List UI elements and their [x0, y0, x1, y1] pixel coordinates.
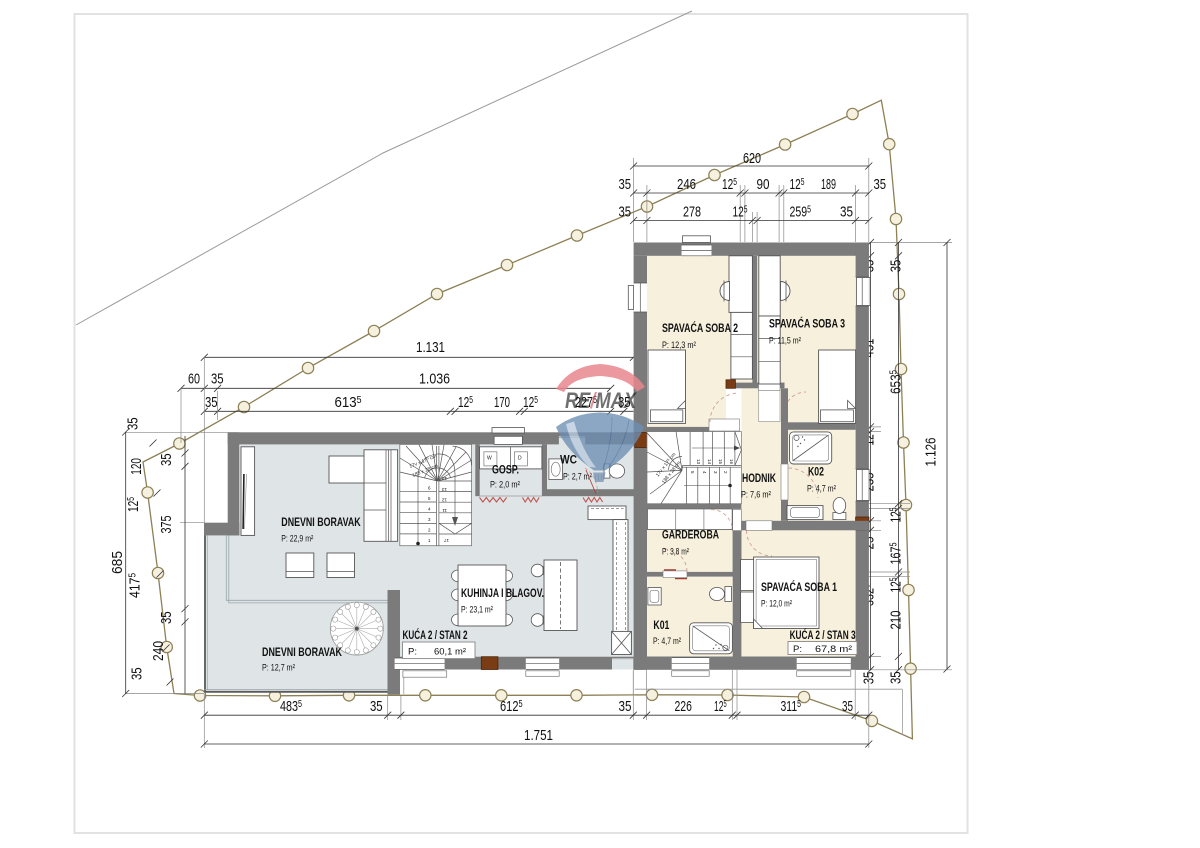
svg-text:685: 685: [109, 551, 126, 574]
svg-text:P: 12,0 m²: P: 12,0 m²: [761, 599, 792, 610]
svg-text:13: 13: [696, 459, 701, 465]
svg-text:278: 278: [683, 204, 701, 221]
svg-text:SPAVAĆA SOBA 3: SPAVAĆA SOBA 3: [769, 318, 845, 331]
svg-text:P: 3,8 m²: P: 3,8 m²: [662, 547, 689, 558]
svg-text:P: 12,3 m²: P: 12,3 m²: [662, 340, 696, 351]
svg-text:35: 35: [129, 667, 146, 680]
svg-text:60,1 m²: 60,1 m²: [434, 647, 466, 658]
svg-text:K01: K01: [653, 620, 669, 632]
svg-text:GARDEROBA: GARDEROBA: [662, 530, 719, 542]
svg-text:RE/MAX: RE/MAX: [565, 388, 637, 413]
svg-text:620: 620: [743, 150, 761, 167]
svg-text:1.126: 1.126: [923, 438, 940, 467]
svg-text:35: 35: [125, 417, 142, 430]
svg-text:15: 15: [718, 459, 723, 465]
svg-text:KUĆA 2 / STAN 2: KUĆA 2 / STAN 2: [403, 629, 468, 642]
svg-text:246: 246: [677, 176, 696, 193]
svg-text:90: 90: [757, 176, 770, 193]
svg-text:189: 189: [821, 176, 836, 193]
svg-text:375: 375: [158, 516, 175, 534]
svg-text:P: 2,0 m²: P: 2,0 m²: [490, 480, 520, 491]
svg-text:35: 35: [370, 698, 383, 715]
svg-text:1.751: 1.751: [524, 727, 553, 744]
svg-text:P: 4,7 m²: P: 4,7 m²: [653, 636, 681, 647]
svg-text:P: 23,1 m²: P: 23,1 m²: [461, 605, 493, 616]
svg-text:11: 11: [442, 508, 447, 513]
svg-text:P: 12,7 m²: P: 12,7 m²: [262, 663, 295, 674]
svg-text:35: 35: [888, 260, 905, 273]
svg-text:DNEVNI BORAVAK: DNEVNI BORAVAK: [281, 517, 361, 529]
svg-text:P: 4,7 m²: P: 4,7 m²: [807, 484, 836, 495]
svg-text:WC: WC: [560, 455, 577, 467]
svg-text:67,8 m²: 67,8 m²: [815, 644, 852, 655]
svg-text:35: 35: [158, 453, 175, 466]
svg-text:P: 11,5 m²: P: 11,5 m²: [769, 336, 801, 347]
svg-text:SPAVAĆA SOBA 2: SPAVAĆA SOBA 2: [662, 322, 738, 335]
svg-text:35: 35: [842, 698, 853, 715]
svg-text:1.131: 1.131: [416, 339, 445, 356]
svg-text:17: 17: [443, 538, 449, 543]
svg-text:P: 7,6 m²: P: 7,6 m²: [741, 490, 771, 501]
svg-text:KUHINJA I BLAGOV.: KUHINJA I BLAGOV.: [461, 588, 544, 600]
svg-text:P:: P:: [793, 644, 802, 655]
svg-text:35: 35: [619, 176, 632, 193]
svg-text:35: 35: [619, 204, 632, 221]
svg-text:35: 35: [211, 371, 224, 388]
svg-text:K02: K02: [808, 467, 824, 479]
svg-text:KUĆA 2 / STAN 3: KUĆA 2 / STAN 3: [790, 629, 856, 642]
svg-text:35: 35: [619, 698, 632, 715]
svg-text:35: 35: [888, 671, 905, 684]
svg-text:14: 14: [707, 459, 712, 465]
svg-text:35: 35: [158, 611, 175, 624]
svg-text:HODNIK: HODNIK: [742, 473, 777, 485]
svg-text:D: D: [518, 456, 522, 462]
svg-text:35: 35: [874, 176, 887, 193]
svg-text:16: 16: [729, 459, 734, 465]
svg-text:210: 210: [888, 611, 905, 630]
svg-text:60: 60: [188, 371, 200, 388]
svg-text:1.036: 1.036: [419, 371, 450, 388]
svg-text:240: 240: [150, 641, 167, 661]
svg-text:14: 14: [441, 476, 447, 481]
svg-text:35: 35: [205, 394, 218, 411]
svg-text:GOSP.: GOSP.: [492, 465, 519, 477]
svg-text:12: 12: [441, 498, 447, 503]
svg-text:W: W: [487, 456, 492, 462]
svg-text:170: 170: [494, 394, 510, 411]
svg-text:DNEVNI BORAVAK: DNEVNI BORAVAK: [262, 647, 343, 659]
svg-text:SPAVAĆA SOBA 1: SPAVAĆA SOBA 1: [761, 581, 837, 594]
svg-text:P:: P:: [408, 647, 417, 658]
svg-text:P: 22,9 m²: P: 22,9 m²: [281, 534, 313, 545]
svg-text:35: 35: [840, 204, 853, 221]
svg-text:13: 13: [441, 487, 447, 492]
svg-text:120: 120: [128, 458, 145, 475]
svg-text:226: 226: [675, 698, 692, 715]
